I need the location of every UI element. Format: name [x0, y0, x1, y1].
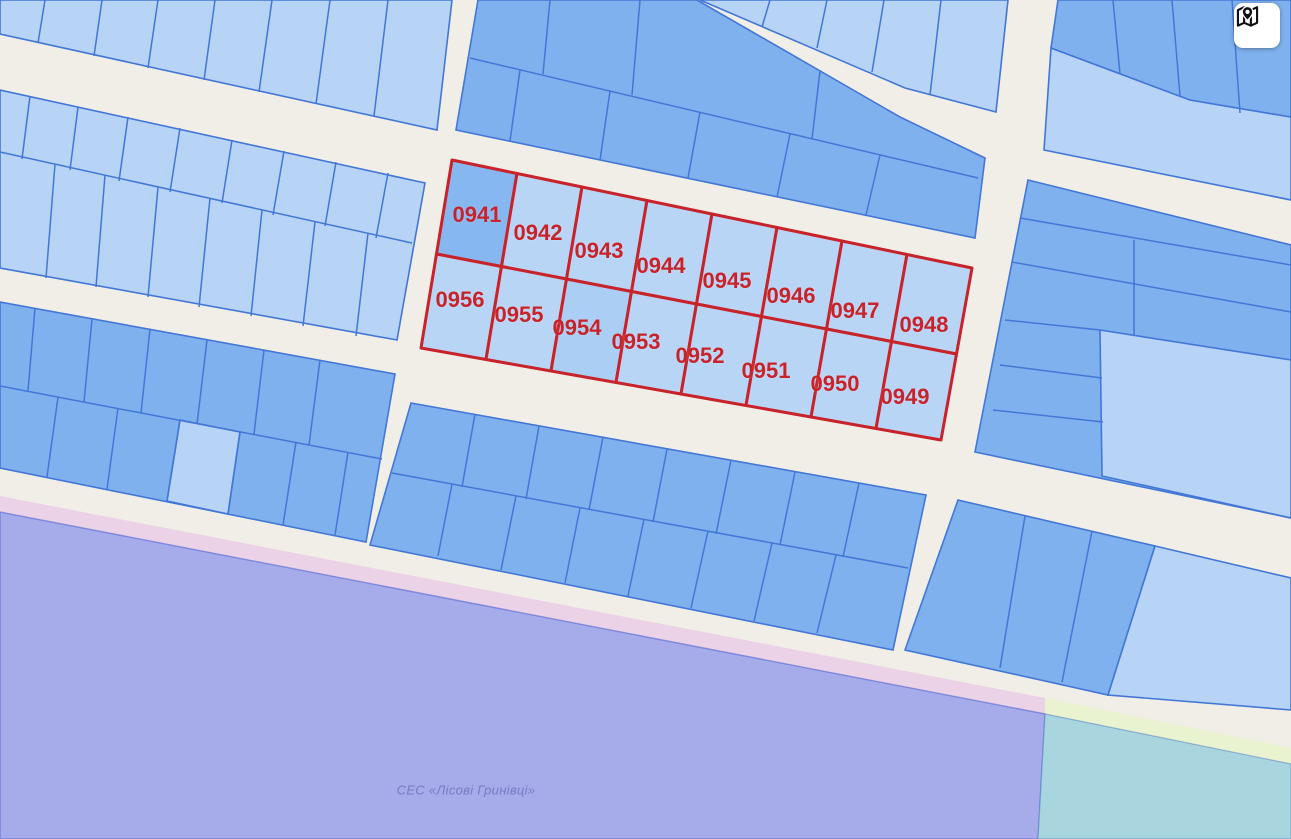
map-layer — [0, 0, 1291, 839]
zone-name-label: СЕС «Лісові Гринівці» — [396, 780, 536, 800]
parcel-cell[interactable] — [876, 342, 957, 441]
parcel-cell[interactable] — [892, 255, 973, 355]
cadastral-map-canvas[interactable]: 0941 0942 0943 0944 0945 0946 0947 0948 … — [0, 0, 1291, 839]
map-overview-button[interactable] — [1234, 3, 1280, 48]
